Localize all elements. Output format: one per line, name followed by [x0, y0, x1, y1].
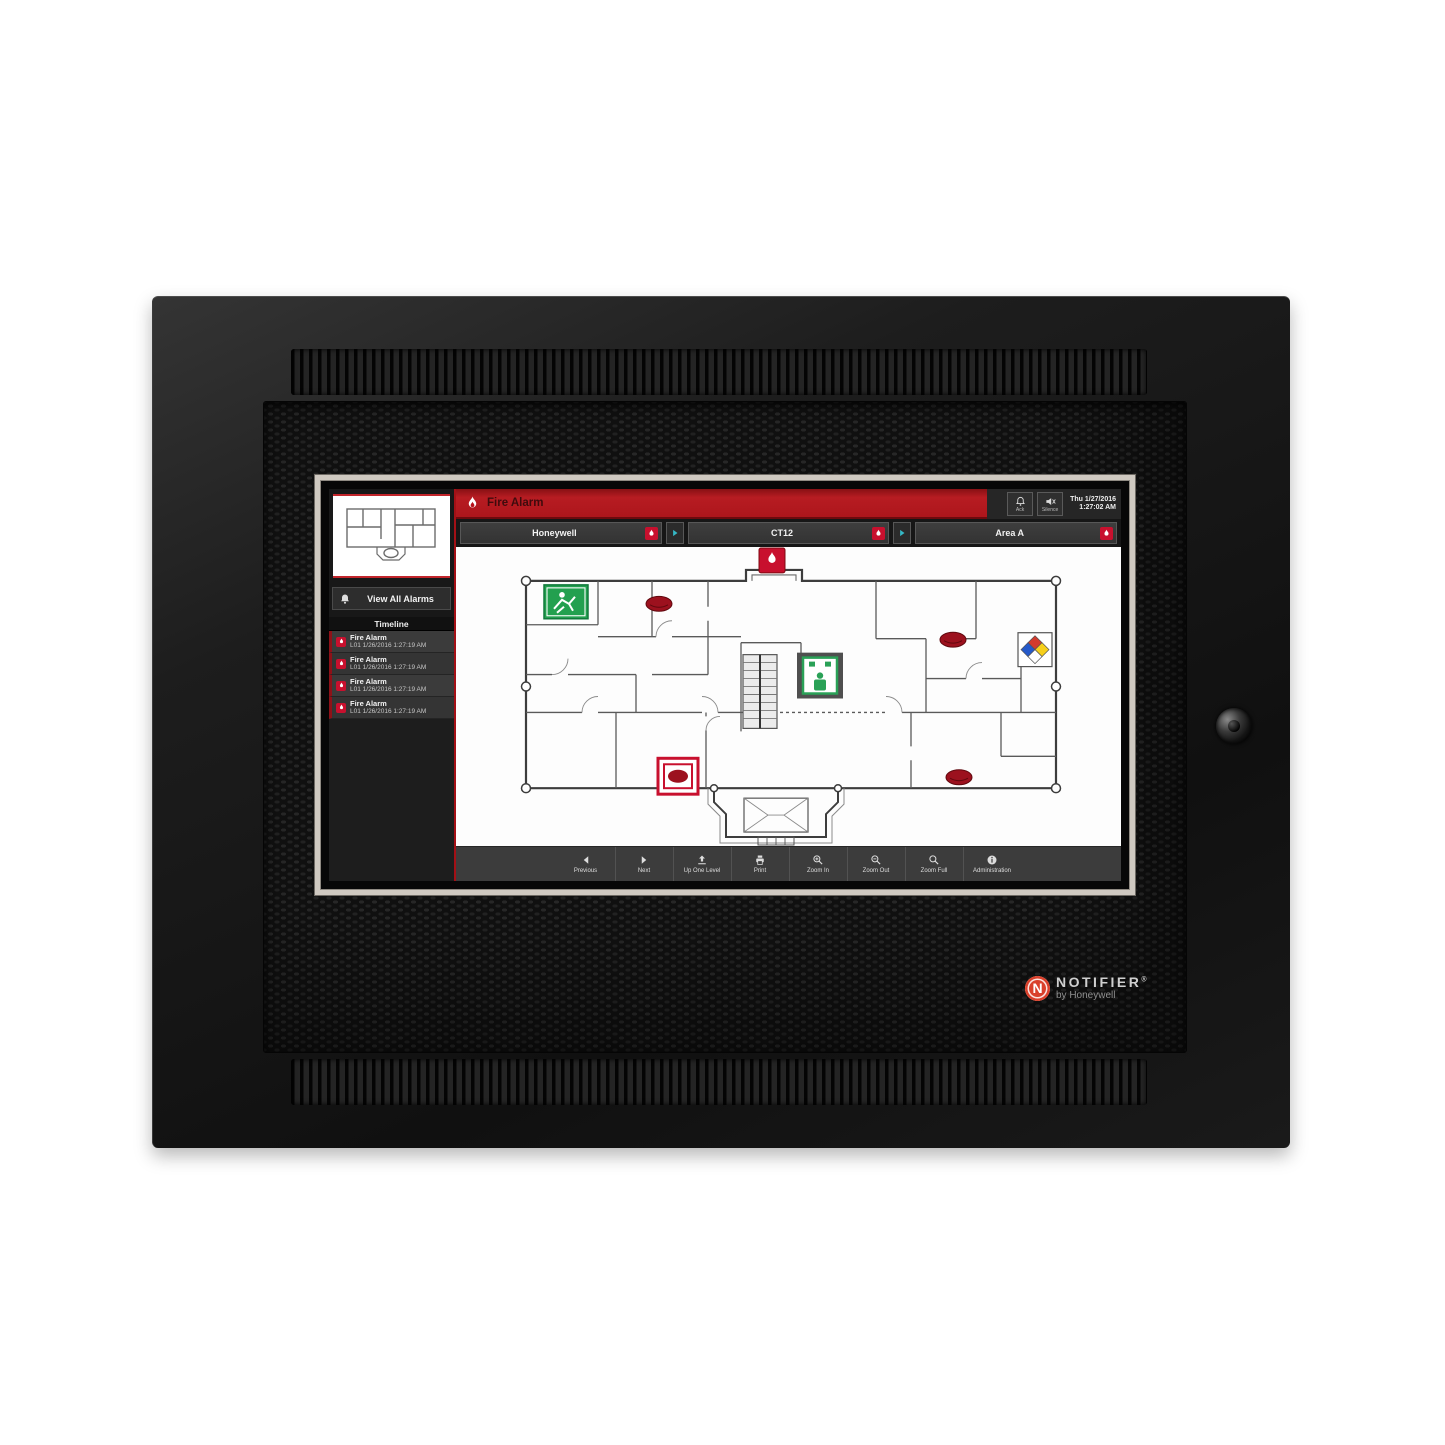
ack-label: Ack [1016, 508, 1024, 513]
bell-icon [1015, 496, 1026, 507]
exit-sign-icon [544, 585, 588, 619]
active-alarm-device-icon [658, 758, 698, 794]
entry-title: Fire Alarm [350, 678, 426, 686]
nav-segment-label: Honeywell [464, 528, 645, 538]
notifier-logo-icon: N [1025, 976, 1050, 1001]
floorplan-thumbnail[interactable] [333, 494, 450, 578]
toolbar-label: Administration [973, 868, 1011, 874]
sidebar-spacer [329, 719, 454, 881]
detector-icon [946, 770, 972, 785]
floorplan-view[interactable] [456, 547, 1121, 846]
alarm-banner: Fire Alarm Ack [456, 489, 1121, 519]
view-all-alarms-label: View All Alarms [357, 594, 444, 604]
entry-timestamp: L01 1/26/2016 1:27:19 AM [350, 686, 426, 693]
timeline-entry[interactable]: Fire Alarm L01 1/26/2016 1:27:19 AM [329, 631, 454, 653]
registered-mark: ® [1141, 976, 1146, 983]
floorplan-drawing [456, 547, 1121, 846]
date-text: Thu 1/27/2016 [1070, 496, 1116, 504]
brand-logo: N NOTIFIER® by Honeywell [1025, 975, 1147, 1001]
alarm-badge-icon [1100, 527, 1113, 540]
next-button[interactable]: Next [615, 847, 673, 881]
entry-title: Fire Alarm [350, 700, 426, 708]
banner-title: Fire Alarm [487, 497, 543, 509]
datetime: Thu 1/27/2016 1:27:02 AM [1070, 496, 1116, 513]
zoom-out-button[interactable]: Zoom Out [847, 847, 905, 881]
alarm-sidebar: View All Alarms Timeline Fire Alarm L01 … [329, 489, 454, 881]
zoom-full-button[interactable]: Zoom Full [905, 847, 963, 881]
touchscreen: View All Alarms Timeline Fire Alarm L01 … [329, 489, 1121, 881]
fire-badge-icon [336, 659, 346, 669]
toolbar-label: Next [638, 868, 650, 874]
brand-subtitle: by Honeywell [1056, 991, 1147, 1002]
lcd-bezel: View All Alarms Timeline Fire Alarm L01 … [315, 475, 1135, 895]
alarm-badge-icon [645, 527, 658, 540]
timeline-list: Fire Alarm L01 1/26/2016 1:27:19 AM Fire… [329, 631, 454, 719]
annunciator-device: N NOTIFIER® by Honeywell [152, 296, 1290, 1148]
entry-timestamp: L01 1/26/2016 1:27:19 AM [350, 642, 426, 649]
brand-name: NOTIFIER® [1056, 975, 1147, 990]
fire-badge-icon [336, 681, 346, 691]
administration-button[interactable]: Administration [963, 847, 1021, 881]
timeline-entry[interactable]: Fire Alarm L01 1/26/2016 1:27:19 AM [329, 675, 454, 697]
alarm-badge-icon [872, 527, 885, 540]
nav-segment-building[interactable]: CT12 [688, 522, 890, 544]
toolbar-label: Print [754, 868, 766, 874]
timeline-entry[interactable]: Fire Alarm L01 1/26/2016 1:27:19 AM [329, 653, 454, 675]
silence-label: Silence [1042, 508, 1058, 513]
entry-title: Fire Alarm [350, 634, 426, 642]
nav-segment-label: Area A [919, 528, 1100, 538]
map-toolbar: Previous Next Up One Level Print [456, 846, 1121, 881]
timeline-header: Timeline [329, 617, 454, 631]
toolbar-label: Zoom Full [921, 868, 948, 874]
alarm-marker-icon [759, 548, 785, 573]
zoom-full-icon [928, 854, 940, 866]
next-icon [638, 854, 650, 866]
play-arrow-icon [670, 527, 680, 539]
print-button[interactable]: Print [731, 847, 789, 881]
acknowledge-button[interactable]: Ack [1007, 492, 1033, 516]
info-icon [986, 854, 998, 866]
zoom-out-icon [870, 854, 882, 866]
zoom-in-icon [812, 854, 824, 866]
fire-badge-icon [336, 703, 346, 713]
toolbar-label: Zoom In [807, 868, 829, 874]
bell-icon [339, 593, 351, 605]
nav-segment-label: CT12 [692, 528, 873, 538]
play-arrow-icon [897, 527, 907, 539]
location-breadcrumb: Honeywell CT12 [456, 519, 1121, 547]
floorplan-thumbnail-image [333, 496, 450, 576]
toolbar-label: Up One Level [684, 868, 721, 874]
nav-next-arrow-button[interactable] [893, 522, 911, 544]
nav-segment-area[interactable]: Area A [915, 522, 1117, 544]
nav-next-arrow-button[interactable] [666, 522, 684, 544]
flame-icon [465, 495, 480, 512]
speaker-mute-icon [1045, 496, 1056, 507]
timeline-entry[interactable]: Fire Alarm L01 1/26/2016 1:27:19 AM [329, 697, 454, 719]
banner-controls: Ack Silence Thu 1/27/2016 1:27:02 AM [987, 489, 1121, 519]
up-level-icon [696, 854, 708, 866]
detector-icon [646, 596, 672, 611]
entry-timestamp: L01 1/26/2016 1:27:19 AM [350, 708, 426, 715]
printer-icon [754, 854, 766, 866]
zoom-in-button[interactable]: Zoom In [789, 847, 847, 881]
entry-title: Fire Alarm [350, 656, 426, 664]
silence-button[interactable]: Silence [1037, 492, 1063, 516]
toolbar-label: Previous [574, 868, 597, 874]
time-text: 1:27:02 AM [1079, 504, 1116, 512]
main-panel: Fire Alarm Ack [454, 489, 1121, 881]
up-one-level-button[interactable]: Up One Level [673, 847, 731, 881]
top-vents [291, 349, 1147, 395]
bottom-vents [291, 1059, 1147, 1105]
detector-icon [940, 632, 966, 647]
entry-timestamp: L01 1/26/2016 1:27:19 AM [350, 664, 426, 671]
previous-icon [580, 854, 592, 866]
door-lock[interactable] [1216, 708, 1252, 744]
view-all-alarms-button[interactable]: View All Alarms [332, 587, 451, 610]
toolbar-label: Zoom Out [863, 868, 890, 874]
hazmat-diamond-icon [1018, 633, 1052, 667]
fire-badge-icon [336, 637, 346, 647]
previous-button[interactable]: Previous [557, 847, 615, 881]
nav-segment-site[interactable]: Honeywell [460, 522, 662, 544]
